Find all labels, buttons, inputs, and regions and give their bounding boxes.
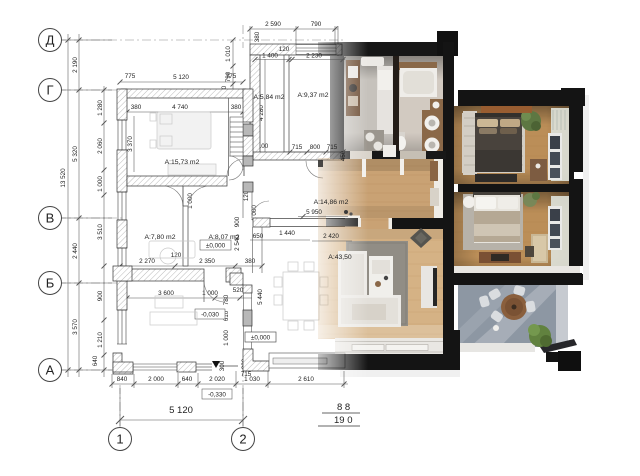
svg-text:А: А (46, 363, 55, 378)
svg-text:А:5,84 m2: А:5,84 m2 (254, 94, 285, 101)
svg-text:1: 1 (116, 432, 123, 447)
svg-text:520: 520 (233, 287, 244, 294)
svg-text:4 740: 4 740 (172, 104, 188, 111)
svg-text:А:15,73 m2: А:15,73 m2 (165, 159, 200, 166)
svg-text:2 350: 2 350 (199, 258, 215, 265)
svg-text:3 370: 3 370 (127, 136, 134, 152)
svg-text:1 000: 1 000 (223, 330, 230, 346)
svg-text:780: 780 (223, 294, 230, 305)
svg-text:715: 715 (292, 144, 303, 151)
svg-text:5 440: 5 440 (257, 289, 264, 305)
svg-text:5 120: 5 120 (169, 405, 193, 416)
svg-text:840: 840 (117, 376, 128, 383)
svg-text:640: 640 (92, 355, 99, 366)
svg-text:8 8: 8 8 (337, 402, 350, 413)
svg-text:5 950: 5 950 (306, 209, 322, 216)
svg-text:-0,330: -0,330 (208, 392, 226, 399)
svg-text:2 610: 2 610 (298, 376, 314, 383)
svg-text:3 510: 3 510 (97, 224, 104, 240)
svg-text:±0,000: ±0,000 (251, 335, 271, 342)
svg-text:А:43,50: А:43,50 (328, 254, 352, 261)
svg-text:1 210: 1 210 (97, 332, 104, 348)
svg-text:А:8,07 m2: А:8,07 m2 (209, 234, 240, 241)
svg-text:2 020: 2 020 (209, 376, 225, 383)
svg-text:380: 380 (245, 258, 256, 265)
svg-text:1 280: 1 280 (97, 100, 104, 116)
svg-text:120: 120 (279, 46, 290, 53)
svg-text:380: 380 (231, 104, 242, 111)
svg-text:Д: Д (46, 33, 55, 48)
svg-text:380: 380 (254, 31, 261, 42)
svg-text:13 520: 13 520 (60, 168, 67, 188)
svg-text:5 320: 5 320 (72, 146, 79, 162)
svg-text:2: 2 (239, 432, 246, 447)
svg-text:В: В (46, 211, 55, 226)
svg-text:Г: Г (46, 83, 53, 98)
svg-text:715: 715 (241, 371, 252, 378)
svg-text:1 440: 1 440 (279, 230, 295, 237)
svg-text:3 570: 3 570 (72, 319, 79, 335)
svg-text:775: 775 (226, 73, 237, 80)
svg-text:2 270: 2 270 (139, 258, 155, 265)
svg-text:2 440: 2 440 (72, 243, 79, 259)
svg-text:5 120: 5 120 (173, 74, 189, 81)
svg-text:2 420: 2 420 (323, 233, 339, 240)
svg-text:19 0: 19 0 (334, 415, 353, 426)
svg-text:А:7,80 m2: А:7,80 m2 (145, 234, 176, 241)
svg-text:2 230: 2 230 (306, 53, 322, 60)
svg-text:2 190: 2 190 (72, 57, 79, 73)
svg-text:900: 900 (234, 216, 241, 227)
svg-text:±0,000: ±0,000 (206, 243, 226, 250)
svg-text:380: 380 (131, 104, 142, 111)
svg-text:1 000: 1 000 (97, 176, 104, 192)
svg-text:800: 800 (310, 144, 321, 151)
svg-text:1 400: 1 400 (262, 53, 278, 60)
svg-text:1 010: 1 010 (225, 46, 232, 62)
svg-text:Б: Б (46, 276, 55, 291)
svg-text:-0,030: -0,030 (201, 312, 219, 319)
svg-text:2 060: 2 060 (97, 138, 104, 154)
svg-text:790: 790 (311, 21, 322, 28)
svg-text:900: 900 (97, 290, 104, 301)
svg-text:775: 775 (125, 73, 136, 80)
svg-text:640: 640 (182, 376, 193, 383)
svg-text:А:9,37 m2: А:9,37 m2 (298, 92, 329, 99)
svg-text:А:14,86 m2: А:14,86 m2 (314, 199, 349, 206)
svg-text:650: 650 (253, 233, 264, 240)
svg-text:2 590: 2 590 (265, 21, 281, 28)
svg-text:2 000: 2 000 (148, 376, 164, 383)
